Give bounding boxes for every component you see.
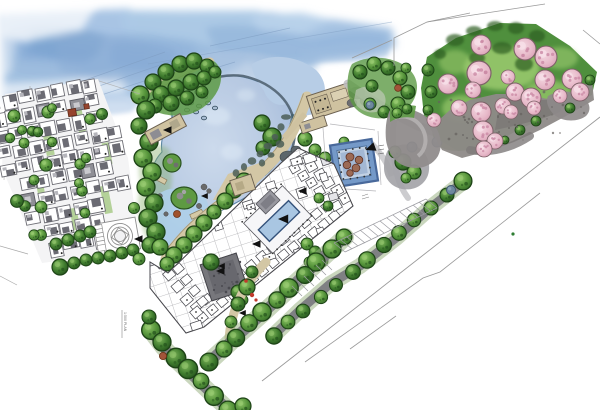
svg-text:1:500 PLAN: 1:500 PLAN	[123, 312, 127, 332]
